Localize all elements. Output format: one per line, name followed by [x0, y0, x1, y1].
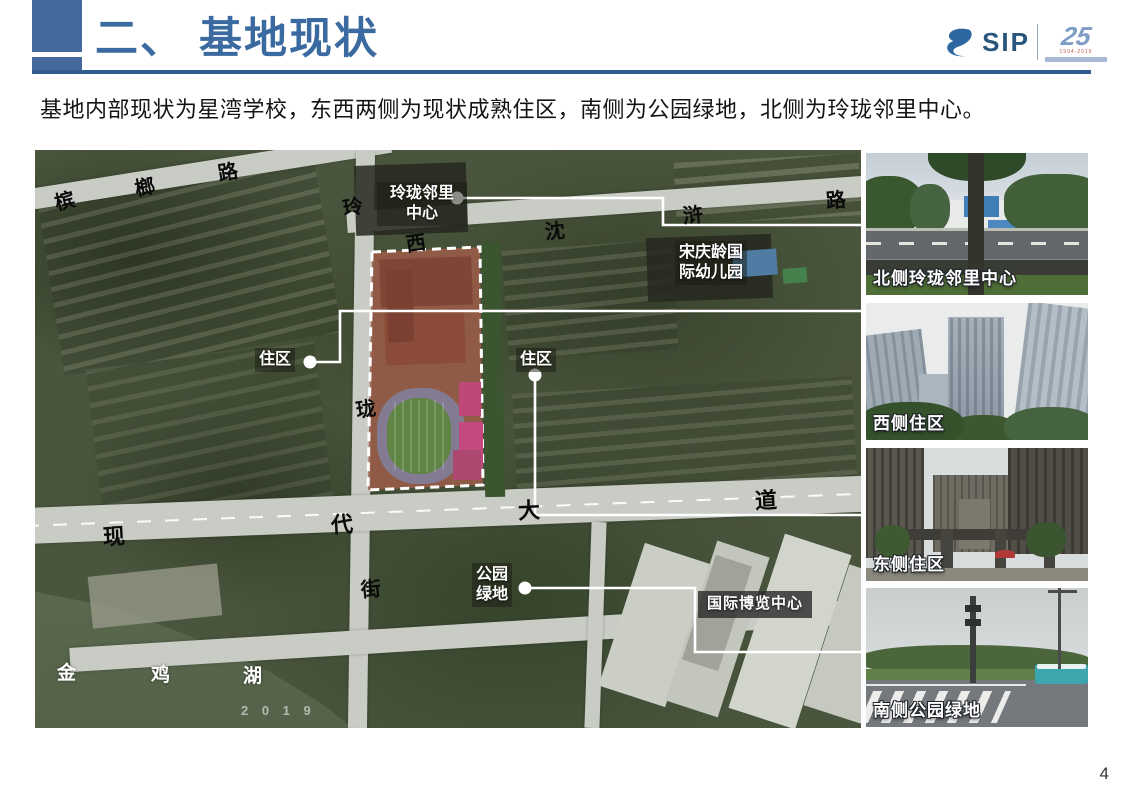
photo-caption: 南侧公园绿地	[873, 696, 981, 721]
site-photos: 北侧玲珑邻里中心 西侧住区 东侧住区	[866, 153, 1088, 735]
imagery-watermark: 2 0 1 9	[241, 703, 316, 718]
leader-dot-west-to-photo2	[304, 356, 317, 369]
leader-dot-south-to-photo4	[519, 582, 532, 595]
sip-logo-text: SIP	[982, 27, 1030, 58]
pink-building	[453, 450, 481, 480]
school-building	[386, 270, 414, 343]
anniversary-caption-bar	[1045, 57, 1107, 62]
satellite-map: 2 0 1 9 槟榔路玲西沈浒路珑街现代大道金鸡湖 玲珑邻里中心宋庆龄国际幼儿园…	[35, 150, 861, 728]
photo-caption: 北侧玲珑邻里中心	[873, 264, 1017, 289]
photo-east-residential: 东侧住区	[866, 448, 1088, 581]
road-label-char: 代	[330, 513, 353, 536]
road-label-char: 浒	[682, 205, 704, 227]
title-accent-square	[32, 0, 82, 52]
sip-swirl-icon	[941, 25, 975, 59]
anniversary-number: 25	[1059, 23, 1093, 49]
road-label-char: 道	[754, 489, 777, 512]
road-label-char: 路	[825, 190, 847, 212]
map-label-park-green: 公园绿地	[472, 563, 512, 607]
page-title: 二、 基地现状	[95, 4, 379, 66]
road-label-char: 珑	[355, 399, 378, 422]
road-label-char: 现	[102, 525, 125, 548]
road-label-char: 大	[517, 499, 540, 522]
photo-south-park: 南侧公园绿地	[866, 588, 1088, 727]
title-accent-bar	[32, 57, 82, 70]
road-label-char: 街	[360, 579, 382, 601]
map-label-songqingling-kindergarten: 宋庆龄国际幼儿园	[675, 241, 747, 285]
road-label-char: 鸡	[151, 666, 170, 685]
map-overlay	[35, 150, 861, 728]
intro-text: 基地内部现状为星湾学校，东西两侧为现状成熟住区，南侧为公园绿地，北侧为玲珑邻里中…	[40, 92, 1100, 124]
anniversary-logo: 25 1994-2019	[1045, 23, 1107, 62]
road-label-char: 沈	[544, 221, 566, 243]
street-lamp	[1058, 588, 1062, 669]
road-label-char: 榔	[133, 176, 157, 200]
photo-caption: 西侧住区	[873, 409, 945, 434]
logo-divider	[1037, 24, 1038, 60]
road-label-char: 金	[57, 664, 76, 683]
map-label-linglong-neighborhood-center: 玲珑邻里中心	[377, 182, 467, 226]
photo-west-residential: 西侧住区	[866, 303, 1088, 440]
sip-logo: SIP 25 1994-2019	[941, 20, 1107, 64]
page-number: 4	[1100, 764, 1109, 784]
leader-line-north-to-photo1	[457, 198, 861, 225]
header-divider	[32, 70, 1091, 74]
map-label-residential-west: 住区	[255, 348, 295, 372]
map-label-expo-center: 国际博览中心	[698, 591, 812, 618]
map-label-residential-east: 住区	[516, 348, 556, 372]
road-label-char: 西	[405, 233, 428, 256]
leader-line-east-to-photo3	[535, 375, 861, 515]
road-label-char: 路	[216, 161, 239, 184]
photo-caption: 东侧住区	[873, 550, 945, 575]
pink-building	[459, 382, 481, 416]
road-label-char: 湖	[243, 667, 262, 686]
red-canopy	[995, 550, 1015, 558]
photo-north-linglong-center: 北侧玲珑邻里中心	[866, 153, 1088, 295]
road-label-char: 玲	[341, 196, 364, 219]
